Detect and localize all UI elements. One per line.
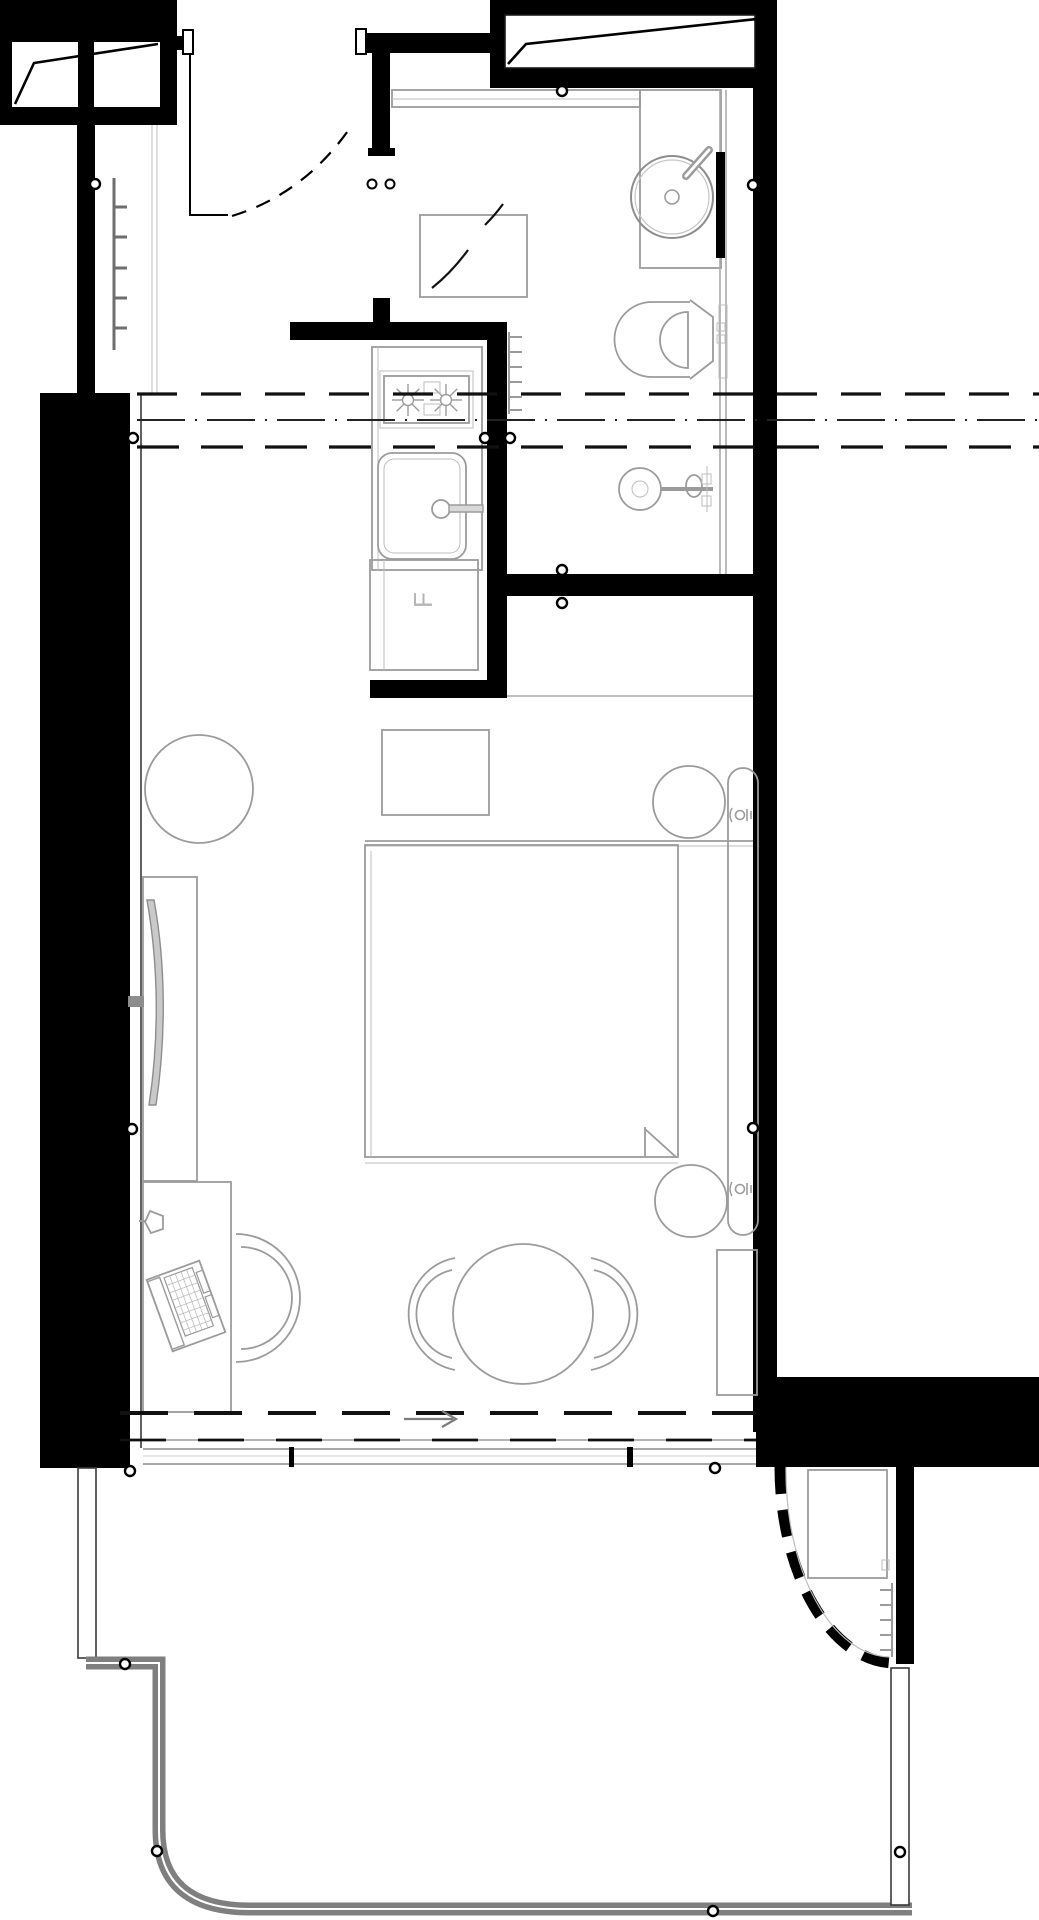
floor-plan-canvas: F — [0, 0, 1039, 1920]
desk-tub-chair — [236, 1234, 300, 1362]
shower-mixer-and-drain — [619, 466, 713, 512]
entry-bench-mat — [420, 204, 527, 297]
window-top-left — [0, 0, 193, 125]
door-pivot-right — [386, 180, 395, 189]
kitchen-sink — [378, 453, 483, 559]
wall-left-shaft — [40, 393, 130, 1468]
wall-kitchen-top — [290, 322, 507, 340]
wall-bottom-right-mass — [756, 1377, 1039, 1467]
tv-media-wall — [128, 877, 197, 1181]
dining-set — [409, 1244, 638, 1384]
towel-radiator — [509, 332, 522, 414]
round-washbasin — [631, 150, 713, 238]
partition-handle — [717, 335, 725, 343]
wall-kitchen-foot — [370, 680, 507, 698]
wall-entry-pier — [372, 53, 390, 148]
window-top-right — [505, 15, 766, 68]
wall-sconce-bottom — [730, 1182, 751, 1196]
wall-sconce-top — [730, 808, 751, 822]
wall-bathroom-south — [507, 574, 755, 596]
work-area — [139, 1182, 300, 1412]
wall-window-sill — [505, 68, 775, 88]
minibar-cabinet — [717, 1250, 757, 1395]
dining-chair-right — [591, 1258, 637, 1370]
entry-jamb-plate — [356, 29, 366, 54]
hall-closet — [392, 90, 640, 107]
curved-dashed-glazing-wall — [780, 1467, 895, 1663]
planter-unit — [808, 1470, 889, 1578]
wall-kitchen-jamb — [373, 298, 390, 322]
round-dining-table — [453, 1244, 593, 1384]
datum-dash-lines-upper — [137, 394, 1039, 447]
fridge-label: F — [408, 592, 438, 608]
bathroom — [509, 90, 727, 574]
structural-walls — [40, 0, 1039, 1664]
wall-window-pier-right — [490, 0, 505, 88]
entry-door-swing — [232, 128, 350, 216]
window-pane-left — [12, 42, 78, 107]
partition-handle — [717, 323, 725, 331]
balcony-railing — [86, 1663, 912, 1909]
dining-chair-left — [409, 1258, 455, 1370]
mirror-strip — [716, 152, 725, 258]
door-pivot-left — [368, 180, 377, 189]
wall-tv — [147, 900, 163, 1105]
balcony — [78, 1467, 912, 1909]
bedside-lamp-bottom — [655, 1165, 727, 1237]
fridge-cabinet: F — [370, 560, 478, 670]
wall-left-pier — [77, 125, 95, 393]
bedside-lamp-top — [653, 766, 725, 838]
wall-entry-pier-foot — [368, 148, 395, 156]
wall-kitchen-east — [487, 322, 507, 698]
kitchenette: F — [370, 347, 753, 696]
glass-partition — [716, 90, 726, 574]
tv-bracket — [128, 996, 144, 1007]
trellis-rungs — [880, 1583, 892, 1657]
balcony-wall-right — [891, 1668, 909, 1905]
laptop — [147, 1261, 226, 1352]
floor-plan-drawing: F — [0, 0, 1039, 1920]
headboard-bench-cushion — [382, 730, 489, 815]
wall-entry-top — [362, 33, 490, 53]
wall-top-band — [505, 0, 777, 15]
double-bed — [365, 841, 753, 1163]
radiator-left — [114, 178, 127, 350]
balcony-wall-left — [78, 1468, 96, 1658]
wall-right — [753, 0, 777, 1432]
blanket-fold — [645, 1127, 676, 1157]
window-sill-band — [143, 1447, 756, 1467]
plant-pot — [145, 735, 253, 843]
kitchen-faucet — [432, 500, 450, 518]
datum-dash-lines-lower — [120, 1411, 756, 1440]
entry-door-leaf — [190, 53, 228, 215]
toilet — [615, 300, 728, 379]
wall-balcony-right-stub — [896, 1467, 914, 1664]
window-jamb — [183, 30, 193, 54]
